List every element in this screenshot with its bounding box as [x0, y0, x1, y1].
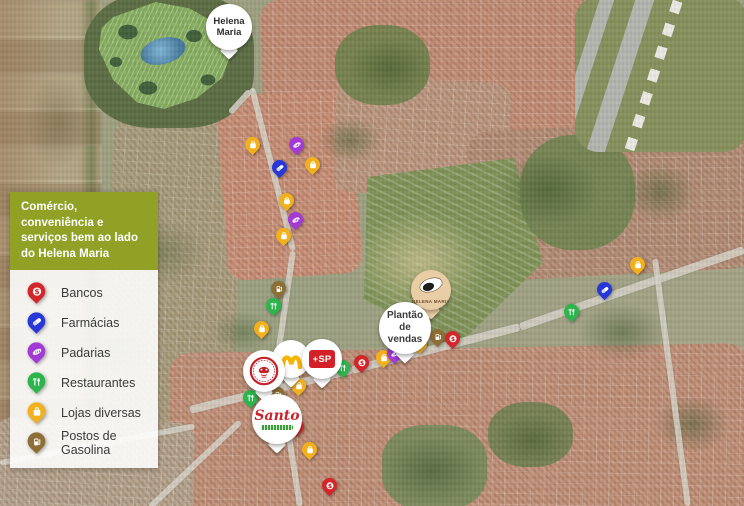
- marker-banco[interactable]: $: [351, 353, 373, 375]
- marker-restaurante[interactable]: [561, 302, 583, 324]
- marker-loja[interactable]: [251, 319, 273, 341]
- shopping-bag-icon: [24, 400, 50, 426]
- pill-icon: [24, 310, 50, 336]
- marker-restaurante[interactable]: [263, 296, 285, 318]
- svg-text:$: $: [450, 336, 454, 343]
- santo-logo-icon: Santo: [254, 409, 299, 430]
- dollar-sign-icon: $: [24, 280, 50, 306]
- legend-item-padaria: Padarias: [10, 338, 158, 368]
- legend-label-farmacia: Farmácias: [61, 316, 119, 330]
- legend-title: Comércio, conveniência e serviços bem ao…: [10, 192, 158, 270]
- development-label-text: Helena Maria: [209, 16, 249, 39]
- marker-banco[interactable]: $: [319, 476, 341, 498]
- marker-loja[interactable]: [302, 155, 324, 177]
- santo-logo-text: Santo: [254, 409, 299, 423]
- legend-item-farmacia: Farmácias: [10, 308, 158, 338]
- legend-label-banco: Bancos: [61, 286, 103, 300]
- svg-text:$: $: [327, 483, 331, 490]
- marker-loja[interactable]: [627, 255, 649, 277]
- helena-maria-logo-icon: HELENA MARIA: [412, 277, 450, 304]
- development-label-pin[interactable]: Helena Maria: [206, 4, 252, 58]
- drogaria-sp-logo-text: +SP: [313, 354, 332, 365]
- legend-label-loja: Lojas diversas: [61, 406, 141, 420]
- santo-logo-bar: [261, 425, 293, 430]
- habibs-logo-icon: [249, 356, 279, 386]
- drogaria-sp-logo-icon: +SP: [309, 350, 335, 368]
- fuel-pump-icon: [24, 430, 50, 456]
- cutlery-icon: [24, 370, 50, 396]
- legend-label-posto: Postos de Gasolina: [61, 429, 150, 457]
- marker-loja[interactable]: [242, 135, 264, 157]
- marker-banco[interactable]: $: [442, 329, 464, 351]
- marker-farmacia[interactable]: [269, 158, 291, 180]
- svg-text:$: $: [34, 287, 39, 296]
- svg-text:$: $: [359, 360, 363, 367]
- marker-loja[interactable]: [299, 440, 321, 462]
- marker-farmacia[interactable]: [594, 280, 616, 302]
- habibs-map-pin[interactable]: [243, 350, 285, 400]
- santo-supermarket-map-pin[interactable]: Santo: [252, 394, 302, 452]
- sales-office-pin[interactable]: Plantão de vendas: [379, 302, 431, 362]
- marker-loja[interactable]: [273, 226, 295, 248]
- legend-items: $BancosFarmáciasPadariasRestaurantesLoja…: [10, 270, 158, 468]
- legend-item-banco: $Bancos: [10, 278, 158, 308]
- legend-item-restaurante: Restaurantes: [10, 368, 158, 398]
- marker-padaria[interactable]: [286, 135, 308, 157]
- satellite-map[interactable]: $$$$ Helena Maria: [0, 0, 744, 506]
- legend-item-loja: Lojas diversas: [10, 398, 158, 428]
- legend-panel: Comércio, conveniência e serviços bem ao…: [10, 192, 158, 468]
- drogaria-sp-map-pin[interactable]: +SP: [302, 339, 342, 387]
- legend-label-restaurante: Restaurantes: [61, 376, 135, 390]
- bread-icon: [24, 340, 50, 366]
- legend-item-posto: Postos de Gasolina: [10, 428, 158, 458]
- legend-label-padaria: Padarias: [61, 346, 110, 360]
- sales-office-text: Plantão de vendas: [383, 310, 427, 346]
